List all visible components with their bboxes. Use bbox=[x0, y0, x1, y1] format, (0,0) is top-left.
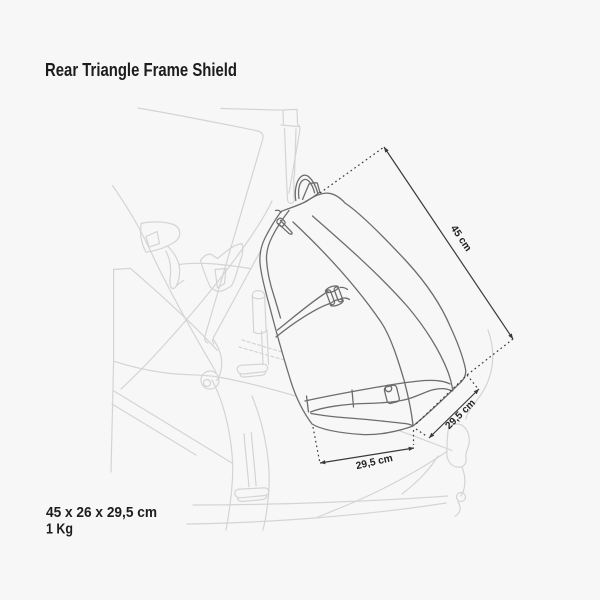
svg-text:45 x 26 x 29,5 cm: 45 x 26 x 29,5 cm bbox=[46, 504, 157, 521]
svg-text:Rear Triangle Frame Shield: Rear Triangle Frame Shield bbox=[45, 59, 237, 80]
svg-text:1 Kg: 1 Kg bbox=[46, 521, 73, 538]
